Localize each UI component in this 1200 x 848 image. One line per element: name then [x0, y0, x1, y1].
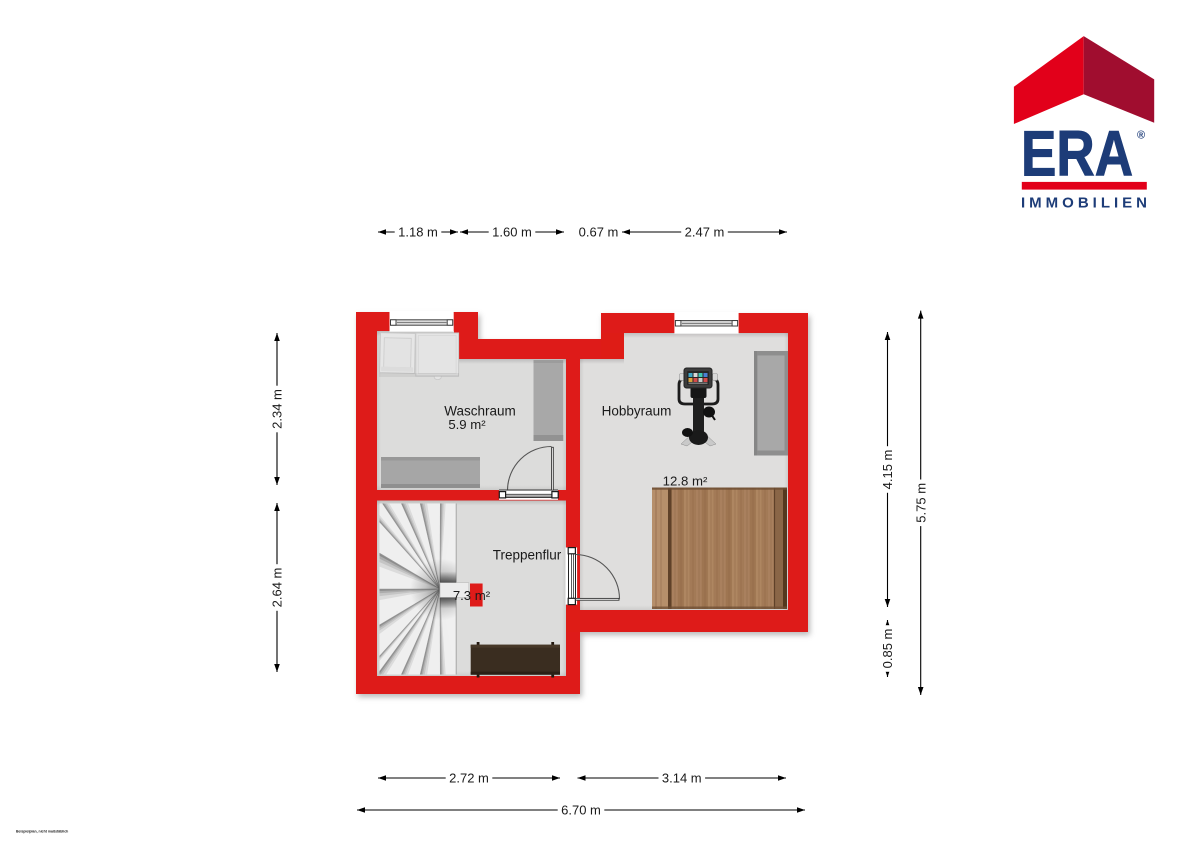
svg-text:Beispielplan, nicht maßstäblic: Beispielplan, nicht maßstäblich [16, 830, 68, 834]
svg-text:1.18 m: 1.18 m [398, 225, 438, 240]
svg-text:5.9 m²: 5.9 m² [448, 417, 486, 432]
svg-text:®: ® [1137, 130, 1145, 142]
svg-text:2.47 m: 2.47 m [685, 225, 725, 240]
svg-text:Hobbyraum: Hobbyraum [602, 404, 672, 419]
svg-text:0.85 m: 0.85 m [880, 629, 895, 669]
svg-text:Treppenflur: Treppenflur [493, 548, 562, 563]
svg-text:IMMOBILIEN: IMMOBILIEN [1021, 195, 1147, 212]
svg-text:0.67 m: 0.67 m [579, 225, 619, 240]
svg-text:12.8 m²: 12.8 m² [663, 474, 708, 489]
svg-text:7.3 m²: 7.3 m² [453, 588, 491, 603]
svg-text:5.75 m: 5.75 m [913, 483, 928, 523]
svg-text:2.72 m: 2.72 m [449, 771, 489, 786]
svg-text:ERA: ERA [1021, 118, 1133, 190]
svg-text:1.60 m: 1.60 m [492, 225, 532, 240]
svg-text:2.64 m: 2.64 m [270, 568, 285, 608]
svg-text:4.15 m: 4.15 m [880, 450, 895, 490]
svg-text:6.70 m: 6.70 m [561, 803, 601, 818]
svg-text:3.14 m: 3.14 m [662, 771, 702, 786]
svg-text:2.34 m: 2.34 m [270, 389, 285, 429]
